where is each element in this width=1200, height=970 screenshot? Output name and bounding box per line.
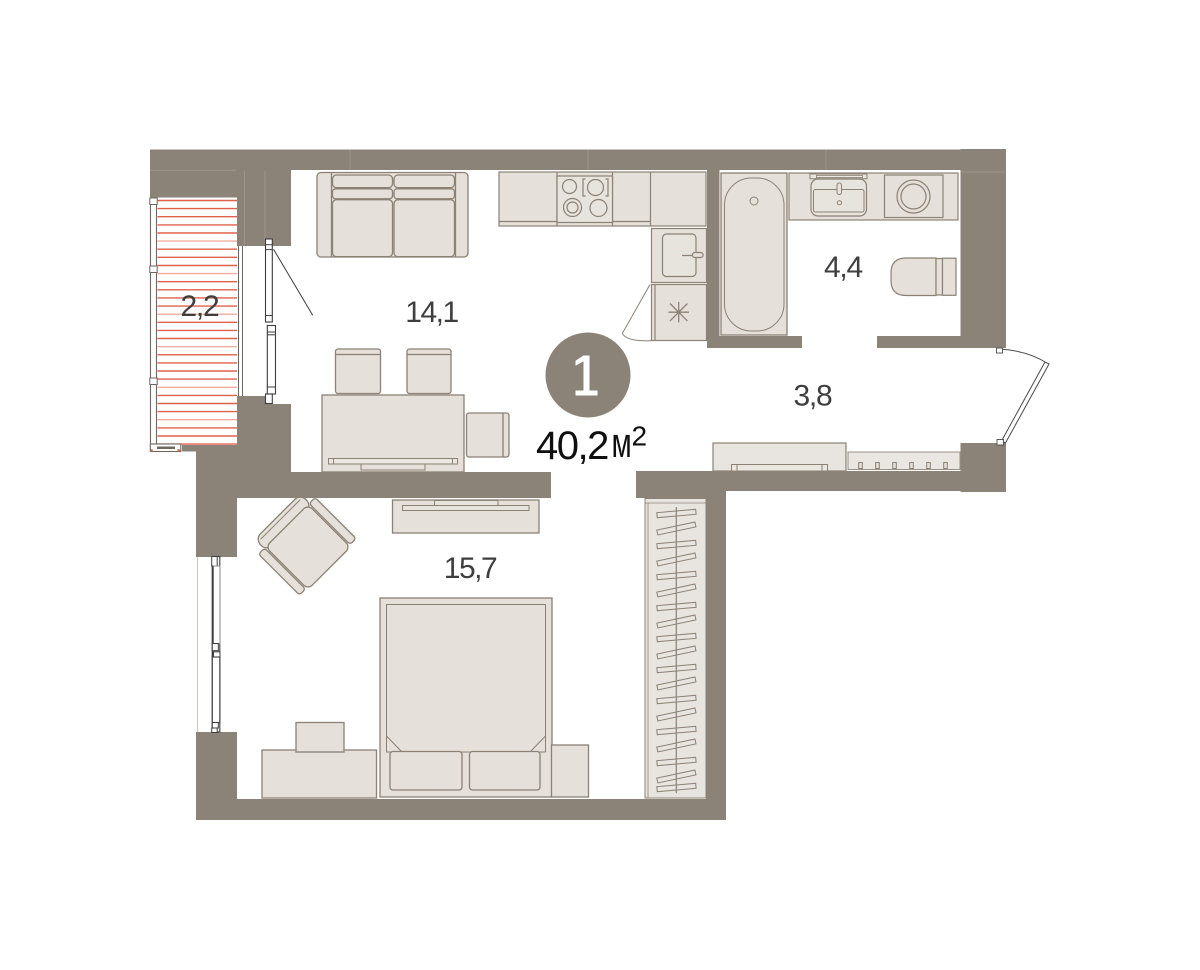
svg-text:14,1: 14,1 [405, 296, 458, 329]
svg-text:4,4: 4,4 [824, 251, 863, 284]
svg-text:м: м [612, 419, 632, 467]
svg-text:40,2: 40,2 [536, 424, 608, 468]
svg-text:2,2: 2,2 [180, 290, 219, 323]
svg-text:3,8: 3,8 [793, 380, 832, 413]
svg-text:15,7: 15,7 [444, 552, 497, 585]
svg-text:2: 2 [632, 421, 648, 452]
